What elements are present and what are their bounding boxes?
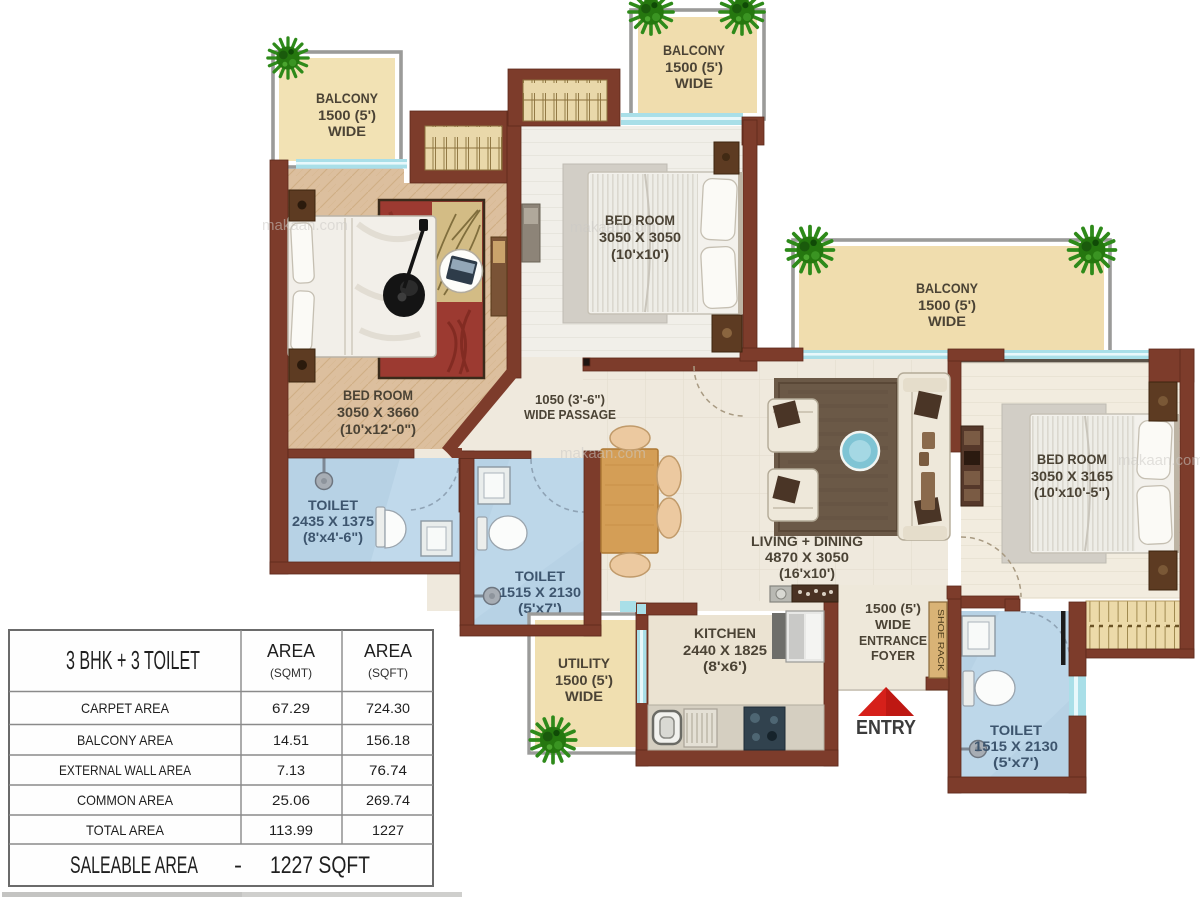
- svg-text:(5'x7'): (5'x7'): [993, 755, 1039, 770]
- svg-text:makaan.com: makaan.com: [560, 445, 646, 462]
- svg-text:1515 X 2130: 1515 X 2130: [974, 739, 1058, 754]
- svg-text:14.51: 14.51: [273, 732, 309, 748]
- svg-text:CARPET AREA: CARPET AREA: [81, 700, 170, 716]
- svg-text:SHOE RACK: SHOE RACK: [936, 609, 945, 672]
- svg-text:-: -: [234, 852, 242, 879]
- svg-text:FOYER: FOYER: [871, 648, 916, 663]
- svg-text:1500 (5'): 1500 (5'): [555, 672, 613, 688]
- svg-text:113.99: 113.99: [269, 822, 313, 838]
- svg-text:TOILET: TOILET: [990, 723, 1043, 738]
- svg-text:makaan.com: makaan.com: [1118, 452, 1200, 469]
- svg-text:3 BHK + 3 TOILET: 3 BHK + 3 TOILET: [66, 645, 200, 675]
- svg-text:WIDE: WIDE: [928, 313, 966, 329]
- svg-text:724.30: 724.30: [366, 700, 410, 716]
- svg-text:3050 X 3165: 3050 X 3165: [1031, 468, 1113, 484]
- svg-text:7.13: 7.13: [277, 762, 305, 778]
- svg-text:BED ROOM: BED ROOM: [1037, 451, 1107, 467]
- svg-text:WIDE: WIDE: [565, 688, 603, 704]
- svg-text:COMMON AREA: COMMON AREA: [77, 792, 174, 808]
- svg-text:1227: 1227: [372, 822, 404, 838]
- svg-text:(10'x12'-0"): (10'x12'-0"): [340, 421, 416, 437]
- svg-text:SALEABLE AREA: SALEABLE AREA: [70, 852, 198, 879]
- svg-text:TOILET: TOILET: [308, 498, 359, 513]
- svg-text:1227 SQFT: 1227 SQFT: [270, 852, 370, 879]
- svg-text:makaan.com: makaan.com: [262, 217, 348, 234]
- svg-text:67.29: 67.29: [272, 700, 310, 716]
- svg-text:(16'x10'): (16'x10'): [779, 565, 835, 581]
- svg-text:1500 (5'): 1500 (5'): [918, 297, 976, 313]
- svg-text:BALCONY: BALCONY: [916, 280, 979, 296]
- svg-text:BED ROOM: BED ROOM: [343, 387, 413, 403]
- svg-text:KITCHEN: KITCHEN: [694, 625, 756, 641]
- svg-text:WIDE: WIDE: [328, 123, 366, 139]
- svg-text:makaan.com: makaan.com: [570, 219, 656, 236]
- svg-text:LIVING + DINING: LIVING + DINING: [751, 533, 863, 549]
- svg-text:UTILITY: UTILITY: [558, 655, 611, 671]
- svg-text:(10'x10'): (10'x10'): [611, 246, 669, 262]
- svg-text:(SQMT): (SQMT): [270, 666, 312, 680]
- svg-text:ENTRANCE: ENTRANCE: [859, 633, 927, 648]
- svg-text:WIDE PASSAGE: WIDE PASSAGE: [524, 408, 616, 422]
- svg-text:1500 (5'): 1500 (5'): [665, 59, 723, 75]
- svg-text:2435 X 1375: 2435 X 1375: [292, 514, 375, 529]
- svg-text:EXTERNAL WALL AREA: EXTERNAL WALL AREA: [59, 762, 192, 778]
- svg-text:156.18: 156.18: [366, 732, 410, 748]
- svg-text:2440 X 1825: 2440 X 1825: [683, 642, 767, 658]
- svg-text:TOTAL AREA: TOTAL AREA: [86, 822, 165, 838]
- svg-text:(10'x10'-5"): (10'x10'-5"): [1034, 484, 1110, 500]
- svg-text:1515 X 2130: 1515 X 2130: [499, 585, 581, 600]
- svg-text:(8'x6'): (8'x6'): [703, 658, 747, 674]
- svg-text:AREA: AREA: [267, 641, 315, 661]
- svg-text:4870 X 3050: 4870 X 3050: [765, 549, 849, 565]
- svg-text:25.06: 25.06: [272, 792, 310, 808]
- svg-text:WIDE: WIDE: [675, 75, 713, 91]
- svg-text:BALCONY: BALCONY: [316, 90, 379, 106]
- svg-text:3050 X 3660: 3050 X 3660: [337, 404, 419, 420]
- svg-text:AREA: AREA: [364, 641, 412, 661]
- svg-text:BALCONY AREA: BALCONY AREA: [77, 732, 174, 748]
- svg-text:269.74: 269.74: [366, 792, 410, 808]
- svg-text:1050 (3'-6"): 1050 (3'-6"): [535, 393, 605, 407]
- svg-text:1500 (5'): 1500 (5'): [318, 107, 376, 123]
- svg-text:WIDE: WIDE: [875, 617, 911, 632]
- svg-text:1500 (5'): 1500 (5'): [865, 601, 921, 616]
- svg-text:ENTRY: ENTRY: [856, 717, 917, 739]
- svg-text:76.74: 76.74: [369, 762, 407, 778]
- svg-text:TOILET: TOILET: [515, 569, 566, 584]
- svg-text:(8'x4'-6"): (8'x4'-6"): [303, 530, 363, 545]
- svg-text:(SQFT): (SQFT): [368, 666, 408, 680]
- svg-text:BALCONY: BALCONY: [663, 42, 726, 58]
